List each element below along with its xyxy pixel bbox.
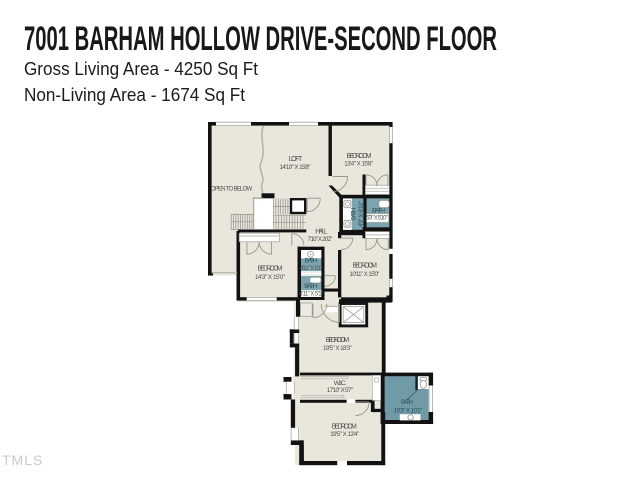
svg-text:Gross Living Area - 4250 Sq Ft: Gross Living Area - 4250 Sq Ft xyxy=(24,59,258,79)
svg-text:BEDROOM: BEDROOM xyxy=(326,337,350,344)
svg-text:LOFT: LOFT xyxy=(289,156,303,163)
svg-text:14'10" X 15'8": 14'10" X 15'8" xyxy=(280,164,311,171)
svg-text:BATH: BATH xyxy=(401,399,413,406)
svg-text:OPEN TO BELOW: OPEN TO BELOW xyxy=(211,187,253,193)
svg-text:19'5" X 18'3": 19'5" X 18'3" xyxy=(323,345,352,352)
svg-text:BEDROOM: BEDROOM xyxy=(352,263,377,270)
svg-text:W.I.C.: W.I.C. xyxy=(334,380,347,387)
svg-text:17'10" X 5'7": 17'10" X 5'7" xyxy=(327,387,353,394)
svg-text:4'11" X 5'1": 4'11" X 5'1" xyxy=(299,291,323,297)
svg-text:Non-Living Area - 1674 Sq Ft: Non-Living Area - 1674 Sq Ft xyxy=(24,85,245,105)
svg-text:7'10" X 20'2": 7'10" X 20'2" xyxy=(308,236,333,243)
svg-text:BEDROOM: BEDROOM xyxy=(332,423,357,430)
svg-text:BATH: BATH xyxy=(305,258,318,265)
svg-text:14'3" X 15'0": 14'3" X 15'0" xyxy=(255,274,285,281)
svg-text:TMLS: TMLS xyxy=(2,452,43,468)
svg-text:BATH: BATH xyxy=(351,207,358,220)
svg-text:4'9" X 6'10": 4'9" X 6'10" xyxy=(359,201,365,227)
svg-text:7001 BARHAM HOLLOW DRIVE-SECON: 7001 BARHAM HOLLOW DRIVE-SECOND FLOOR xyxy=(24,20,497,58)
svg-text:BEDROOM: BEDROOM xyxy=(258,266,283,273)
svg-text:BEDROOM: BEDROOM xyxy=(347,153,372,160)
svg-text:10'3" X 10'1": 10'3" X 10'1" xyxy=(394,408,423,414)
svg-text:5'3" X 5'10": 5'3" X 5'10" xyxy=(366,216,388,222)
svg-text:BATH: BATH xyxy=(304,283,317,290)
svg-text:4'11" X 5'1": 4'11" X 5'1" xyxy=(300,266,323,272)
svg-text:13'4" X 15'8": 13'4" X 15'8" xyxy=(344,160,373,167)
svg-text:HALL: HALL xyxy=(315,229,328,236)
svg-text:BATH: BATH xyxy=(372,208,385,215)
svg-text:10'11" X 15'0": 10'11" X 15'0" xyxy=(350,271,380,278)
svg-text:19'5" X 13'4": 19'5" X 13'4" xyxy=(330,431,359,438)
